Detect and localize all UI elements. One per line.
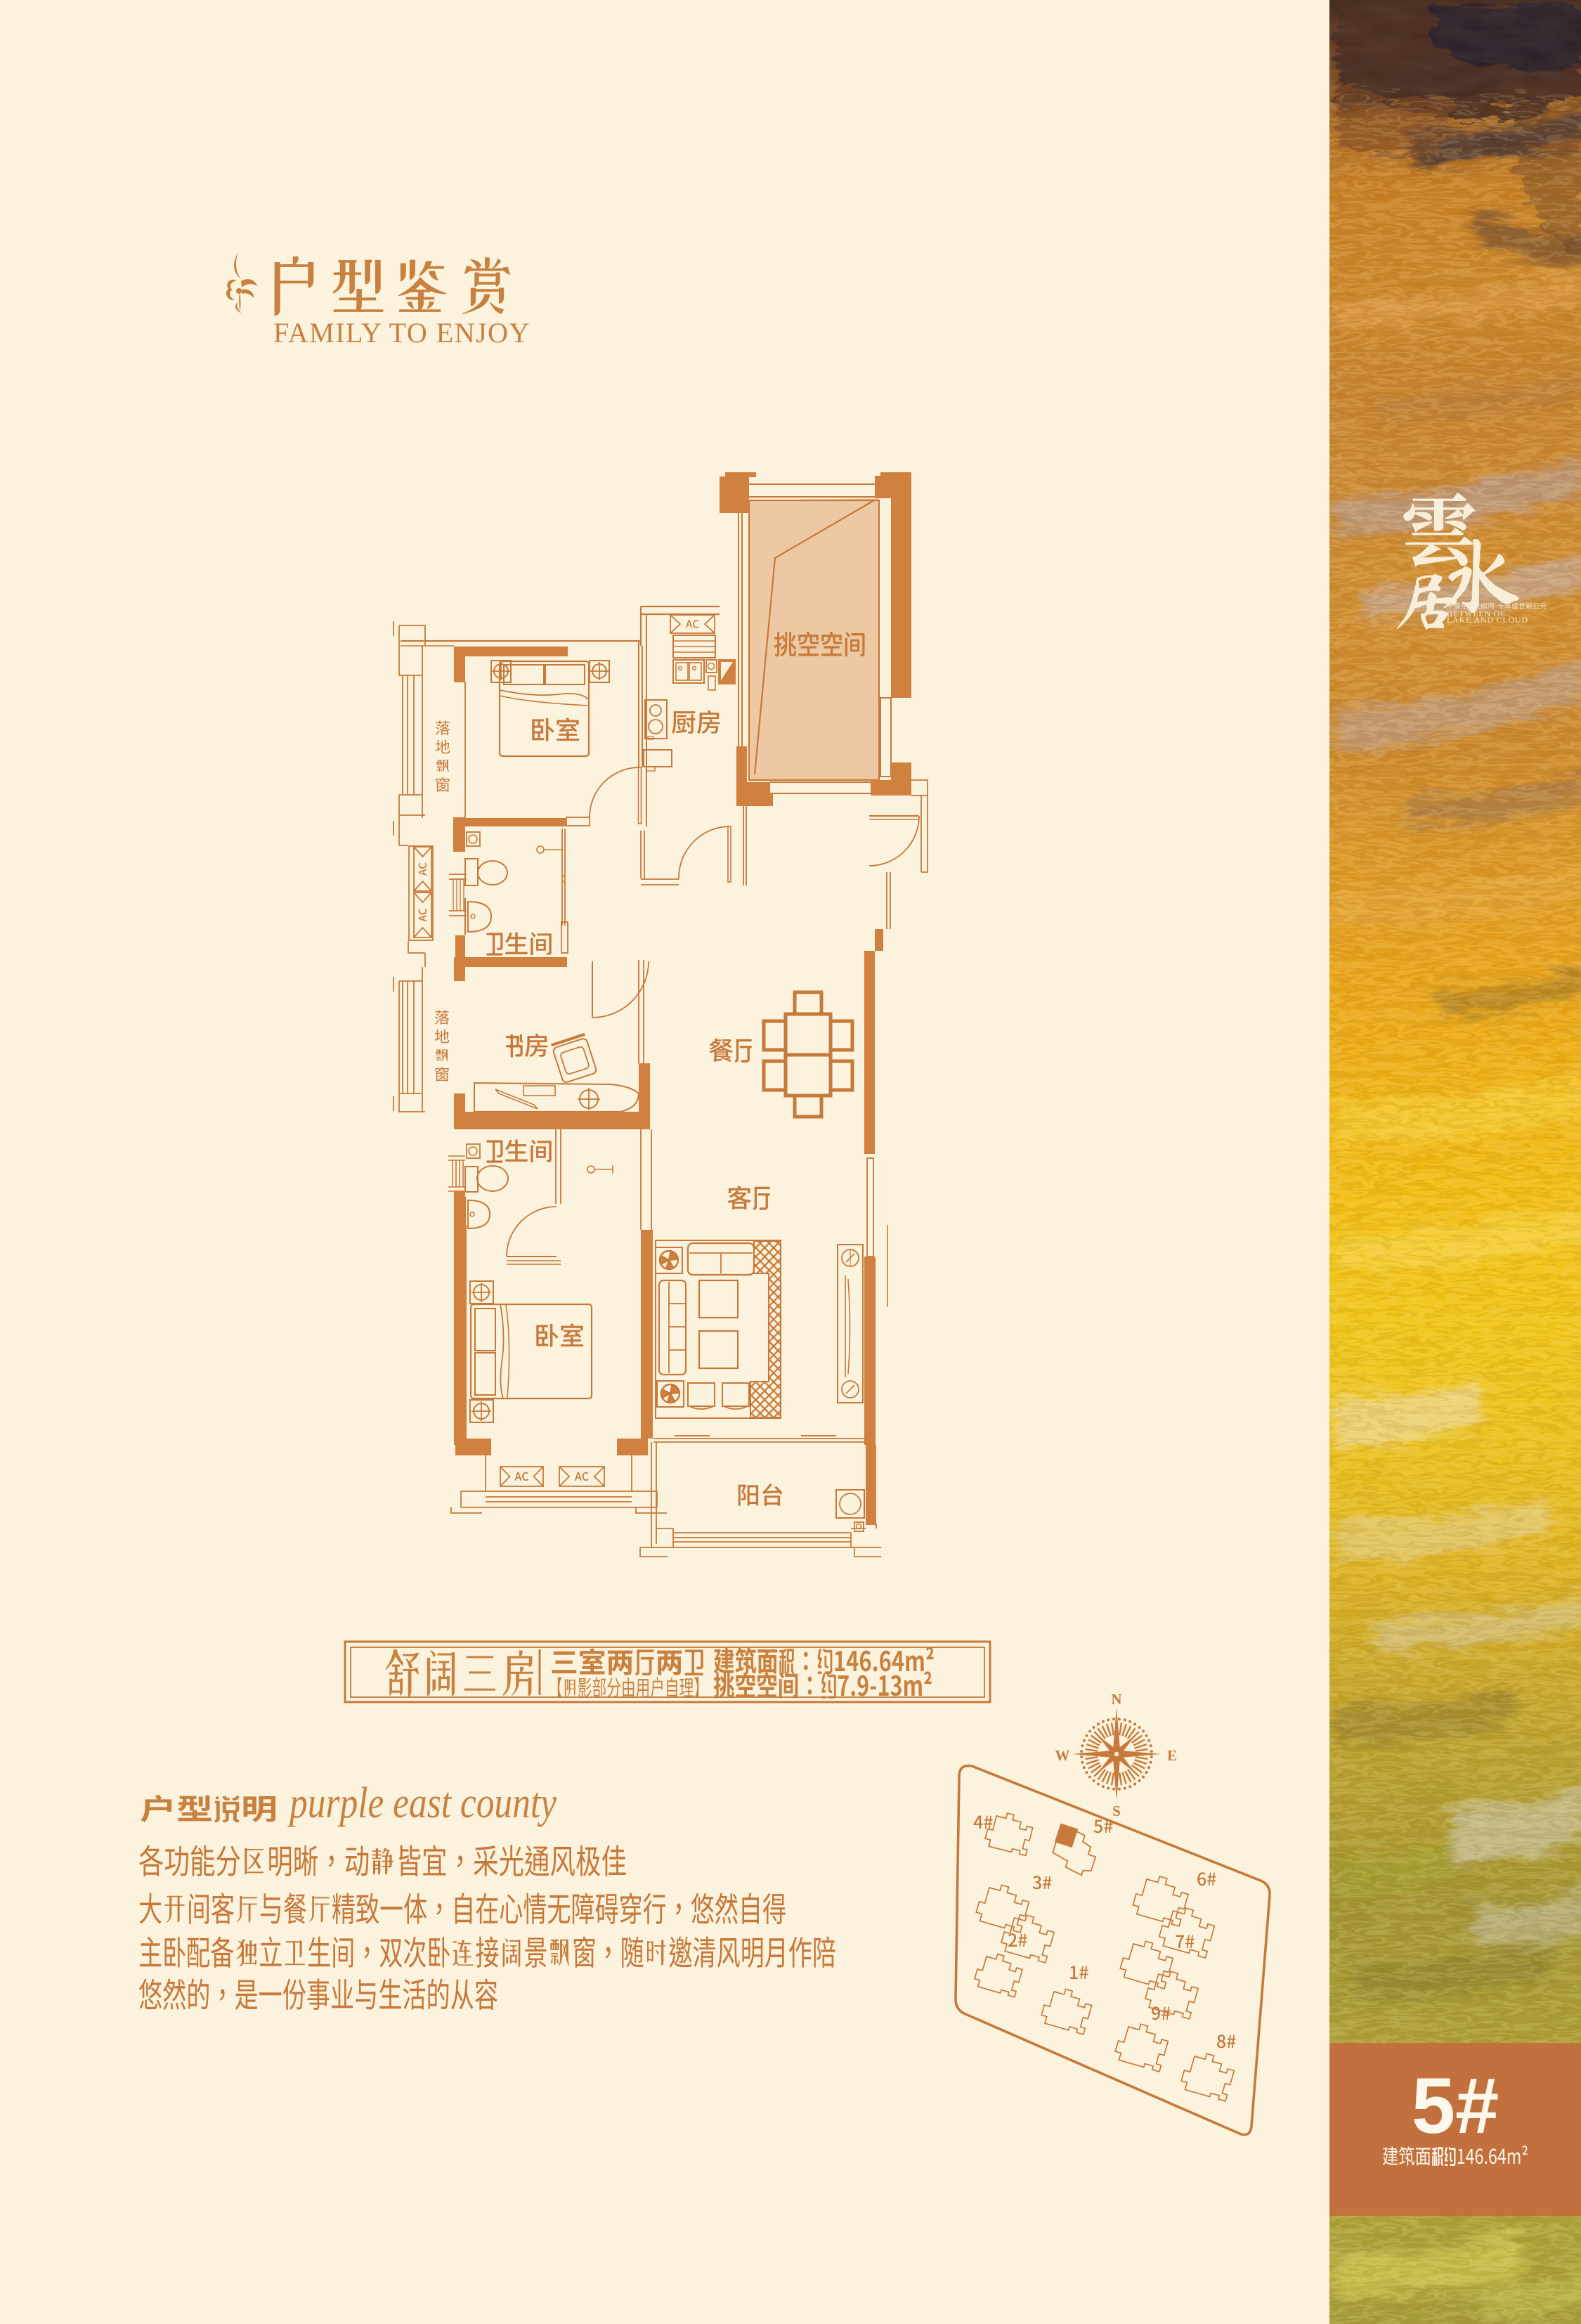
svg-text:W: W [1055,1747,1070,1764]
svg-text:purple east county: purple east county [287,1779,557,1827]
svg-text:S: S [1112,1803,1121,1819]
svg-text:LAKE AND CLOUD: LAKE AND CLOUD [1447,615,1528,625]
svg-text:N: N [1111,1691,1121,1708]
svg-text:5#: 5# [1412,2062,1499,2150]
svg-text:E: E [1167,1747,1177,1764]
svg-text:FAMILY TO ENJOY: FAMILY TO ENJOY [273,317,531,349]
